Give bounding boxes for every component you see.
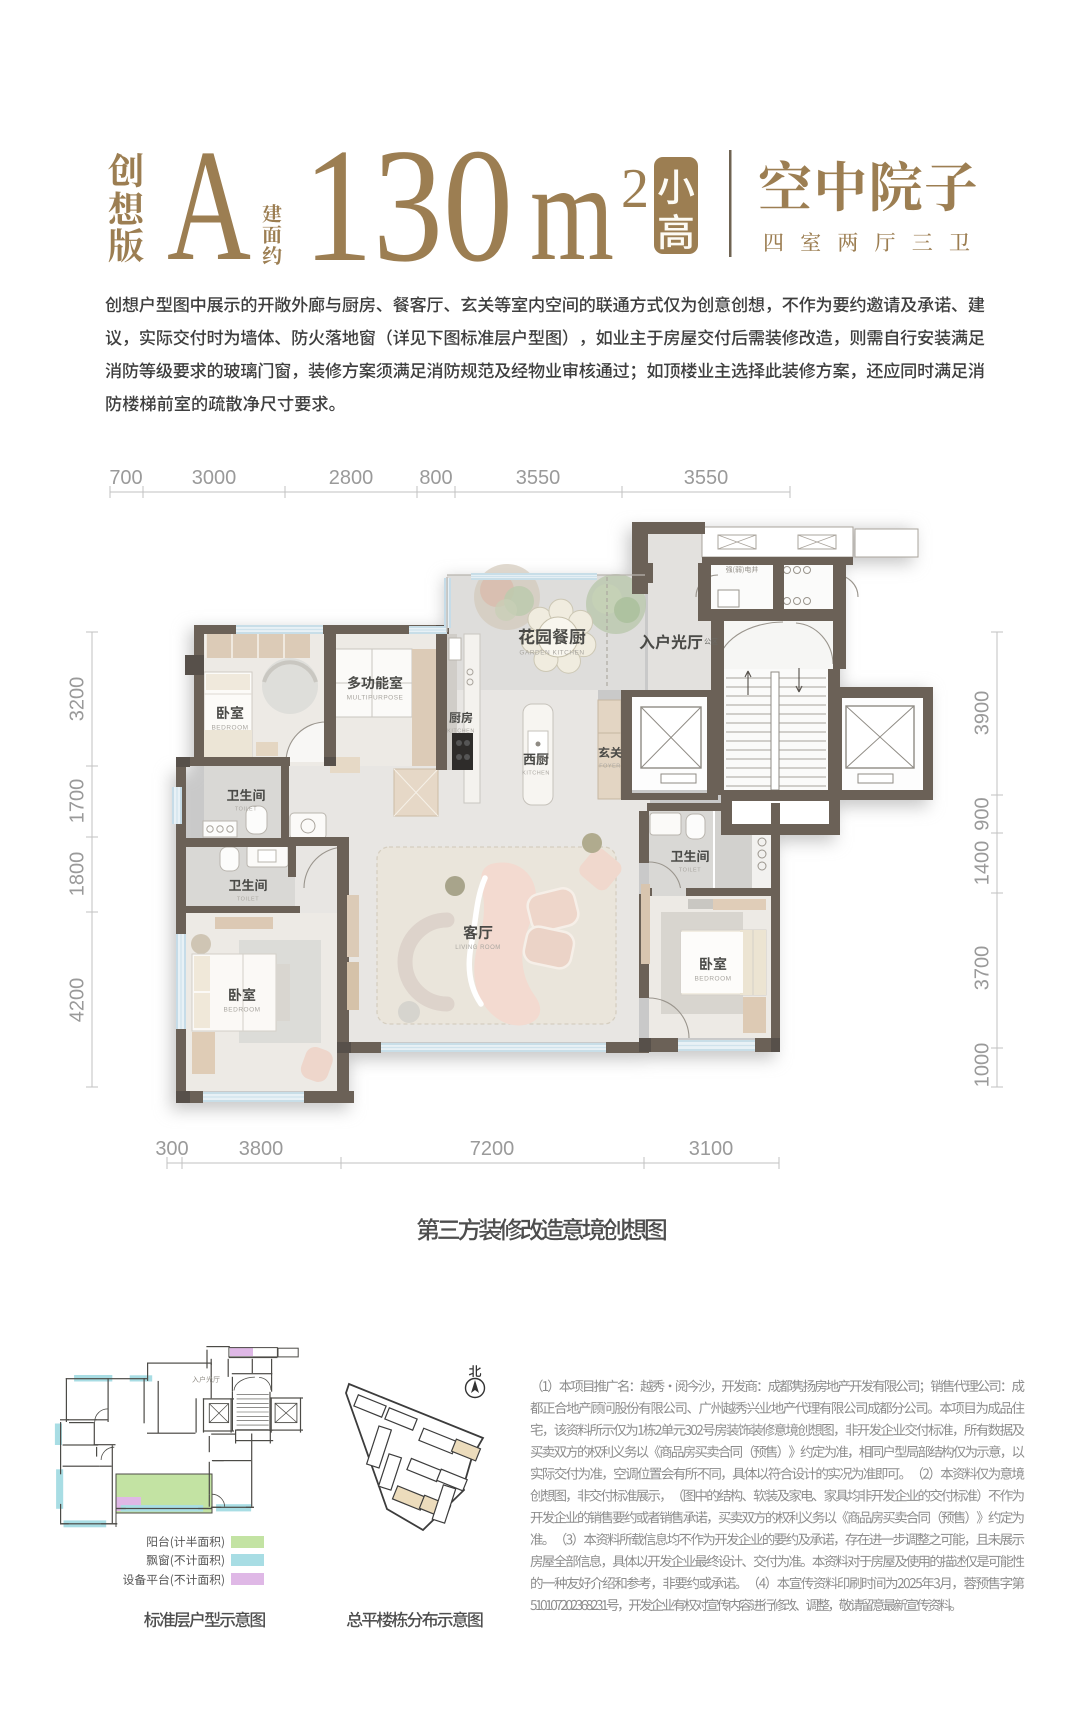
svg-text:BEDROOM: BEDROOM (694, 976, 731, 983)
svg-text:KITCHEN: KITCHEN (522, 771, 550, 777)
svg-text:A: A (167, 116, 251, 294)
svg-text:3700: 3700 (971, 946, 993, 991)
svg-text:TOILET: TOILET (237, 897, 259, 903)
svg-text:3550: 3550 (684, 467, 729, 489)
svg-text:900: 900 (971, 797, 993, 830)
svg-text:BEDROOM: BEDROOM (211, 725, 248, 732)
svg-text:FOYER: FOYER (599, 764, 620, 770)
svg-text:7200: 7200 (470, 1138, 515, 1160)
svg-text:BEDROOM: BEDROOM (223, 1007, 260, 1014)
svg-text:TOILET: TOILET (235, 807, 257, 813)
svg-text:3900: 3900 (971, 691, 993, 736)
svg-text:130: 130 (303, 116, 513, 296)
svg-text:300: 300 (155, 1138, 188, 1160)
svg-text:GARDEN KITCHEN: GARDEN KITCHEN (519, 650, 584, 657)
svg-text:4200: 4200 (66, 978, 88, 1023)
svg-text:1400: 1400 (971, 841, 993, 886)
svg-text:MULTIPURPOSE: MULTIPURPOSE (347, 695, 404, 702)
svg-text:1000: 1000 (971, 1043, 993, 1088)
svg-text:1800: 1800 (66, 852, 88, 897)
svg-text:3100: 3100 (689, 1138, 734, 1160)
svg-text:800: 800 (419, 467, 452, 489)
svg-text:LIVING ROOM: LIVING ROOM (455, 945, 501, 951)
svg-text:3000: 3000 (192, 467, 237, 489)
svg-text:3800: 3800 (239, 1138, 284, 1160)
svg-text:2800: 2800 (329, 467, 374, 489)
svg-text:TOILET: TOILET (679, 868, 701, 874)
svg-text:3200: 3200 (66, 677, 88, 722)
svg-text:3550: 3550 (516, 467, 561, 489)
svg-text:700: 700 (109, 467, 142, 489)
svg-text:m: m (530, 135, 614, 290)
svg-text:1700: 1700 (66, 779, 88, 824)
svg-text:2: 2 (621, 158, 649, 220)
svg-text:KITCHEN: KITCHEN (447, 729, 475, 735)
